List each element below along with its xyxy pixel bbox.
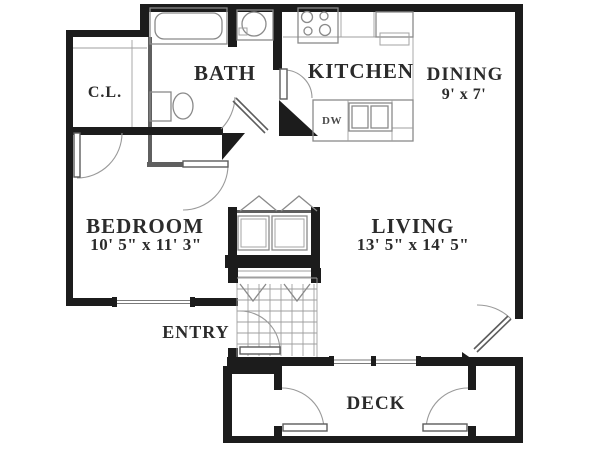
tub-inner bbox=[155, 13, 222, 39]
stove-icon bbox=[298, 8, 338, 43]
wall-segment bbox=[225, 255, 320, 268]
wall-segment bbox=[66, 127, 223, 135]
door-leaf bbox=[283, 424, 327, 431]
window-cap bbox=[112, 297, 117, 307]
deck-sliding-door bbox=[329, 356, 421, 366]
window-cap bbox=[371, 356, 376, 366]
wall-segment bbox=[223, 366, 282, 374]
wall-segment bbox=[66, 30, 147, 37]
wall-segment bbox=[66, 30, 73, 306]
closet-door bbox=[74, 133, 122, 178]
door-leaf bbox=[240, 347, 280, 354]
burner bbox=[320, 25, 331, 36]
entry-label: ENTRY bbox=[162, 322, 229, 342]
wall-segment bbox=[192, 298, 238, 306]
kitchen-sink-basin bbox=[371, 106, 388, 128]
dining-dimensions: 9' x 7' bbox=[442, 86, 486, 103]
door-arc bbox=[240, 311, 280, 351]
dining-label: DINING bbox=[427, 64, 504, 85]
wall-segment bbox=[273, 8, 282, 70]
wall-segment bbox=[311, 268, 321, 283]
closet-label: C.L. bbox=[88, 84, 122, 101]
angled-wall bbox=[222, 133, 245, 160]
burner bbox=[302, 12, 313, 23]
wall-segment bbox=[66, 298, 115, 306]
wall-segment bbox=[228, 268, 238, 283]
window-cap bbox=[329, 356, 334, 366]
door-leaf bbox=[233, 101, 265, 133]
deck-label: DECK bbox=[347, 393, 406, 414]
washer-dryer-closet bbox=[238, 196, 317, 250]
wall-segment bbox=[515, 357, 523, 443]
refrigerator-icon bbox=[376, 12, 413, 45]
door-leaf bbox=[183, 161, 228, 167]
window-glass bbox=[115, 298, 192, 306]
bedroom-dimensions: 10' 5" x 11' 3" bbox=[90, 235, 201, 254]
wall-segment bbox=[223, 366, 232, 443]
wall-segment bbox=[228, 6, 237, 47]
door-leaf bbox=[477, 319, 511, 352]
window-cap bbox=[190, 297, 195, 307]
bifold-door-icon bbox=[284, 284, 310, 301]
floor-plan-page: DW bbox=[0, 0, 600, 450]
dryer-icon bbox=[272, 216, 307, 250]
bath-door bbox=[221, 97, 268, 133]
washer-icon bbox=[238, 216, 269, 250]
front-door bbox=[240, 311, 280, 354]
stove-body bbox=[298, 8, 338, 43]
bath-sink-icon bbox=[237, 10, 273, 40]
washer-inner bbox=[241, 219, 266, 247]
wall-segment bbox=[227, 357, 332, 366]
bathtub-icon bbox=[150, 8, 227, 44]
door-arc bbox=[77, 133, 122, 178]
living-deck-corner-door bbox=[474, 305, 511, 352]
bedroom-door bbox=[183, 161, 228, 210]
wall-segment bbox=[462, 357, 523, 366]
door-leaf bbox=[423, 424, 467, 431]
bifold-door-icon bbox=[240, 196, 277, 211]
toilet-bowl bbox=[173, 93, 193, 119]
wall-segment bbox=[515, 8, 523, 319]
burner bbox=[320, 12, 328, 20]
kitchen-label: KITCHEN bbox=[308, 59, 414, 83]
wall-segment bbox=[228, 207, 237, 255]
sink-bowl bbox=[242, 12, 266, 36]
bifold-door-icon bbox=[240, 284, 266, 301]
burner bbox=[304, 27, 312, 35]
wall-segment bbox=[223, 436, 523, 443]
window-cap bbox=[416, 356, 421, 366]
dishwasher-label: DW bbox=[322, 115, 342, 127]
door-arc bbox=[183, 165, 228, 210]
entry-closet-doors bbox=[240, 284, 310, 301]
living-dimensions: 13' 5" x 14' 5" bbox=[357, 235, 469, 254]
door-leaf bbox=[236, 98, 268, 130]
wall-segment bbox=[274, 366, 282, 390]
closet-front-line bbox=[237, 210, 311, 213]
hall-partition bbox=[148, 135, 152, 163]
toilet-icon bbox=[150, 92, 193, 121]
angled-wall bbox=[279, 100, 318, 136]
kitchen-sink-basin bbox=[352, 106, 368, 128]
door-leaf bbox=[74, 133, 80, 177]
toilet-tank bbox=[150, 92, 171, 121]
door-leaf bbox=[474, 316, 508, 349]
bedroom-window bbox=[112, 297, 195, 307]
fridge-front bbox=[380, 33, 409, 45]
wall-segment bbox=[274, 426, 282, 443]
deck-storage-right-door bbox=[423, 388, 468, 431]
door-leaf bbox=[280, 69, 287, 99]
bedroom-door-wall bbox=[147, 162, 183, 167]
wall-segment bbox=[468, 366, 476, 390]
dryer-inner bbox=[275, 219, 304, 247]
wall-segment bbox=[468, 426, 476, 443]
kitchen-counter: DW bbox=[313, 100, 413, 141]
deck-storage-left-door bbox=[282, 388, 327, 431]
door-arc bbox=[477, 305, 511, 319]
floor-plan-svg: DW bbox=[0, 0, 600, 450]
bath-label: BATH bbox=[194, 61, 256, 85]
